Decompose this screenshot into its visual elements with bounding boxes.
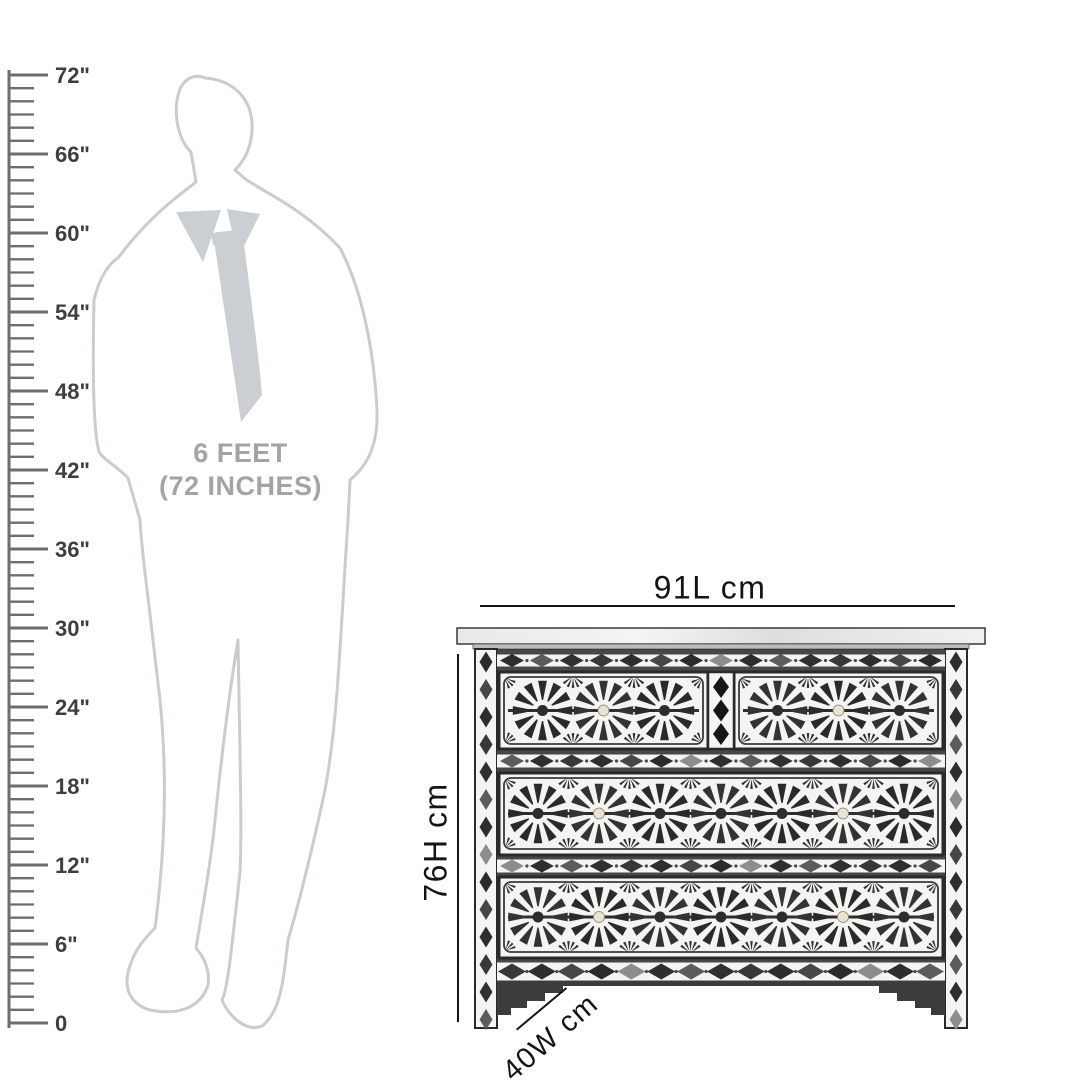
inlay-dot xyxy=(555,864,558,867)
burst-center xyxy=(659,705,670,716)
inlay-dot xyxy=(704,759,707,762)
inlay-dot xyxy=(913,864,916,867)
burst-center xyxy=(838,912,849,923)
burst-center xyxy=(833,705,844,716)
band-rail xyxy=(497,768,945,773)
inlay-dot xyxy=(525,759,528,762)
inlay-dot xyxy=(704,864,707,867)
inlay-dot xyxy=(585,864,588,867)
burst-center xyxy=(777,808,788,819)
inlay-dot xyxy=(555,759,558,762)
burst-center xyxy=(777,912,788,923)
step-bracket-right xyxy=(879,985,945,1015)
height-caption-line1: 6 FEET xyxy=(148,437,333,470)
inlay-dot xyxy=(794,759,797,762)
burst-center xyxy=(894,705,905,716)
burst-center xyxy=(533,808,544,819)
inlay-dot xyxy=(615,864,618,867)
inlay-dot xyxy=(734,659,737,662)
length-label: 91L cm xyxy=(654,570,767,607)
height-label: 76H cm xyxy=(418,782,455,901)
inlay-dot xyxy=(645,864,648,867)
inlay-dot xyxy=(525,659,528,662)
burst-center xyxy=(716,912,727,923)
ruler-label: 6" xyxy=(55,932,78,957)
inlay-dot xyxy=(913,759,916,762)
band-rail xyxy=(497,750,945,755)
inlay-dot xyxy=(645,759,648,762)
inlay-dot xyxy=(675,759,678,762)
inlay-dot xyxy=(734,864,737,867)
inlay-dot xyxy=(824,759,827,762)
burst-center xyxy=(594,808,605,819)
inlay-dot xyxy=(585,659,588,662)
inlay-dot xyxy=(734,759,737,762)
burst-center xyxy=(899,912,910,923)
inlay-dot xyxy=(854,759,857,762)
height-caption: 6 FEET (72 INCHES) xyxy=(148,437,333,503)
inlay-dot xyxy=(675,864,678,867)
inlay-dot xyxy=(884,864,887,867)
inlay-dot xyxy=(764,659,767,662)
inlay-dot xyxy=(764,759,767,762)
inlay-dot xyxy=(615,659,618,662)
human-silhouette xyxy=(80,65,410,1055)
burst-center xyxy=(594,912,605,923)
inlay-dot xyxy=(824,864,827,867)
inlay-dot xyxy=(794,659,797,662)
dresser-top-slab xyxy=(457,628,985,644)
inlay-dot xyxy=(794,864,797,867)
band-rail xyxy=(497,667,945,672)
inlay-dot xyxy=(854,864,857,867)
ruler-label: 0 xyxy=(55,1011,67,1036)
height-caption-line2: (72 INCHES) xyxy=(148,470,333,503)
inlay-dot xyxy=(884,659,887,662)
height-dimension-line xyxy=(457,654,459,1022)
burst-center xyxy=(716,808,727,819)
inlay-dot xyxy=(704,659,707,662)
inlay-dot xyxy=(585,759,588,762)
apron-base xyxy=(497,981,945,986)
burst-center xyxy=(772,705,783,716)
inlay-dot xyxy=(615,759,618,762)
top-rail xyxy=(473,644,969,649)
inlay-dot xyxy=(824,659,827,662)
inlay-dot xyxy=(645,659,648,662)
inlay-dot xyxy=(675,659,678,662)
burst-center xyxy=(655,912,666,923)
inlay-dot xyxy=(913,659,916,662)
inlay-dot xyxy=(854,659,857,662)
burst-center xyxy=(533,912,544,923)
size-comparison-diagram: 72"66"60"54"48"42"36"30"24"18"12"6"0 6 F… xyxy=(0,0,1080,1080)
inlay-dot xyxy=(764,864,767,867)
burst-center xyxy=(899,808,910,819)
inlay-dot xyxy=(555,659,558,662)
inlay-dot xyxy=(525,864,528,867)
burst-center xyxy=(655,808,666,819)
inlay-dot xyxy=(884,759,887,762)
band-rail xyxy=(497,650,945,655)
burst-center xyxy=(537,705,548,716)
chest-of-drawers xyxy=(405,570,1000,1080)
burst-center xyxy=(838,808,849,819)
burst-center xyxy=(598,705,609,716)
